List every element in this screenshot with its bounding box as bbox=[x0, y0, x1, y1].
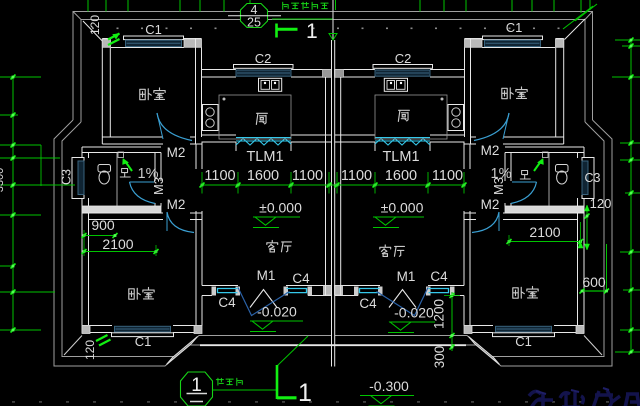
svg-text:C2: C2 bbox=[395, 51, 412, 66]
svg-text:1100: 1100 bbox=[204, 168, 235, 184]
svg-text:C4: C4 bbox=[218, 295, 236, 310]
svg-text:25: 25 bbox=[247, 16, 261, 30]
svg-text:900: 900 bbox=[91, 217, 115, 233]
svg-text:C4: C4 bbox=[430, 269, 448, 284]
svg-text:120: 120 bbox=[83, 340, 97, 360]
svg-text:C3: C3 bbox=[60, 169, 74, 185]
svg-text:300: 300 bbox=[432, 346, 447, 369]
svg-text:-0.020: -0.020 bbox=[394, 305, 434, 321]
svg-text:M3: M3 bbox=[491, 177, 506, 195]
svg-text:C1: C1 bbox=[515, 334, 532, 349]
svg-text:M3: M3 bbox=[151, 177, 166, 195]
svg-text:-0.300: -0.300 bbox=[369, 378, 409, 394]
svg-text:1100: 1100 bbox=[292, 168, 323, 184]
svg-text:±0.000: ±0.000 bbox=[381, 200, 424, 216]
svg-text:M2: M2 bbox=[481, 143, 500, 158]
svg-text:2100: 2100 bbox=[102, 236, 133, 252]
svg-text:1600: 1600 bbox=[385, 168, 417, 184]
svg-text:C2: C2 bbox=[255, 51, 272, 66]
svg-text:C1: C1 bbox=[145, 22, 162, 37]
svg-text:2100: 2100 bbox=[529, 224, 560, 240]
svg-text:1100: 1100 bbox=[341, 168, 372, 184]
svg-text:1100: 1100 bbox=[432, 168, 463, 184]
svg-text:1: 1 bbox=[306, 20, 318, 43]
svg-text:C1: C1 bbox=[135, 334, 152, 349]
svg-text:C3: C3 bbox=[585, 171, 601, 185]
svg-text:TLM1: TLM1 bbox=[246, 149, 283, 165]
svg-text:M2: M2 bbox=[167, 145, 186, 160]
svg-text:M2: M2 bbox=[481, 197, 500, 212]
svg-text:TLM1: TLM1 bbox=[382, 149, 419, 165]
svg-text:1200: 1200 bbox=[432, 299, 447, 329]
svg-text:3300: 3300 bbox=[0, 168, 6, 192]
svg-text:120: 120 bbox=[590, 196, 612, 211]
svg-text:M1: M1 bbox=[257, 268, 276, 283]
svg-text:C4: C4 bbox=[359, 296, 377, 311]
svg-text:M1: M1 bbox=[397, 269, 416, 284]
svg-text:C1: C1 bbox=[506, 20, 523, 35]
svg-text:M2: M2 bbox=[167, 197, 186, 212]
svg-text:±0.000: ±0.000 bbox=[259, 200, 302, 216]
svg-text:-0.020: -0.020 bbox=[257, 304, 297, 320]
svg-text:120: 120 bbox=[88, 15, 102, 35]
svg-text:600: 600 bbox=[582, 274, 606, 290]
svg-text:1600: 1600 bbox=[247, 168, 279, 184]
svg-text:C4: C4 bbox=[292, 271, 310, 286]
